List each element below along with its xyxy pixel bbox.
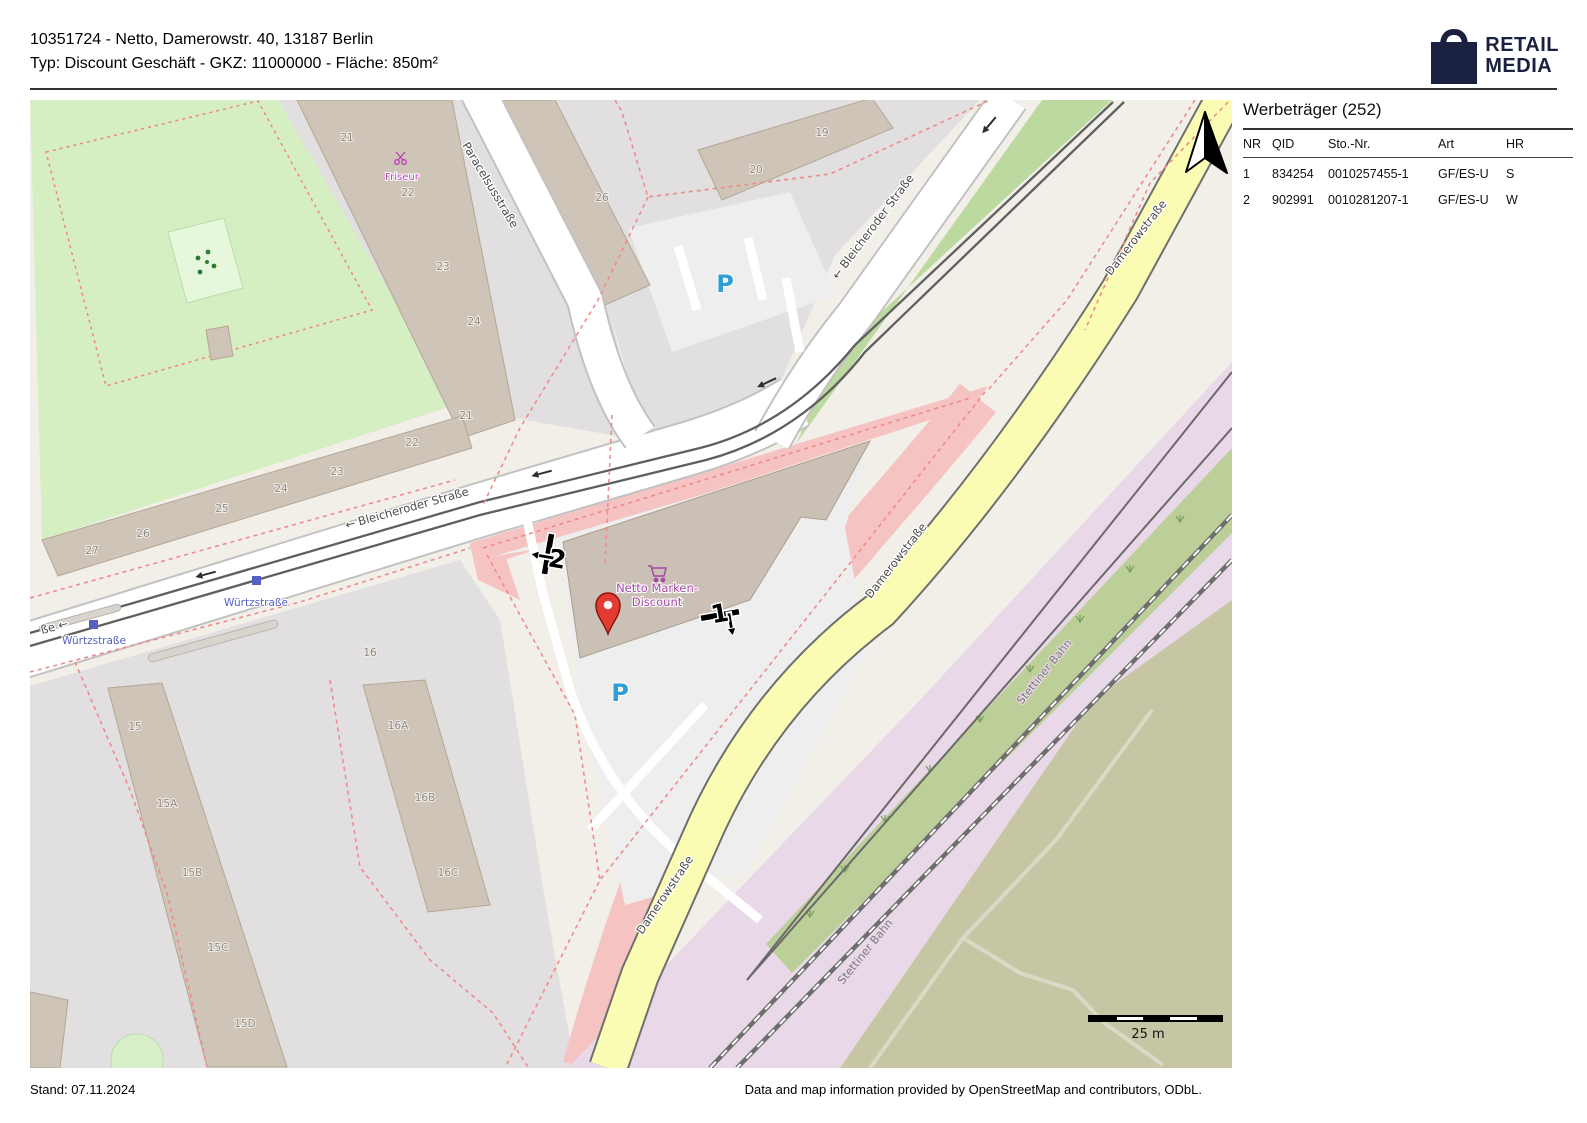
table-cell: 902991 — [1272, 184, 1328, 210]
table-cell: GF/ES-U — [1438, 158, 1506, 184]
col-hr: HR — [1506, 130, 1573, 158]
logo-word-media: MEDIA — [1485, 56, 1559, 77]
poi-label-netto-line2: Discount — [632, 595, 683, 609]
house-number: 15D — [234, 1018, 255, 1030]
house-number: 23 — [330, 466, 343, 478]
house-number: 16A — [388, 720, 409, 732]
house-number: 25 — [215, 503, 228, 515]
logo-word-retail: RETAIL — [1485, 35, 1559, 56]
house-number: 24 — [274, 483, 288, 495]
table-cell: 1 — [1243, 158, 1272, 184]
table-cell: 834254 — [1272, 158, 1328, 184]
store-subtitle: Typ: Discount Geschäft - GKZ: 11000000 -… — [30, 52, 438, 76]
tram-stop-label-wurtzstrasse: Würtzstraße — [224, 597, 288, 609]
house-number: 26 — [595, 192, 609, 204]
house-number: 22 — [405, 437, 418, 449]
house-number: 15B — [182, 867, 203, 879]
col-stonr: Sto.-Nr. — [1328, 130, 1438, 158]
house-number: 24 — [467, 316, 481, 328]
panel-title: Werbeträger (252) — [1243, 100, 1573, 130]
retail-media-logo: RETAIL MEDIA — [1429, 26, 1559, 86]
report-footer: Stand: 07.11.2024 Data and map informati… — [30, 1082, 1557, 1097]
house-number: 20 — [749, 164, 762, 176]
table-cell: 2 — [1243, 184, 1272, 210]
house-number: 26 — [136, 528, 150, 540]
map-canvas: Paracelsusstraße ← Bleicheroder Straße ←… — [30, 100, 1232, 1068]
parking-p-label: P — [611, 679, 629, 707]
house-number: 23 — [436, 261, 449, 273]
col-qid: QID — [1272, 130, 1328, 158]
house-number: 22 — [401, 187, 414, 199]
poi-label-netto-line1: Netto Marken- — [616, 581, 698, 595]
header-divider — [30, 88, 1557, 90]
table-cell: 0010257455-1 — [1328, 158, 1438, 184]
tram-stop-icon — [252, 576, 261, 585]
report-header: 10351724 - Netto, Damerowstr. 40, 13187 … — [30, 28, 438, 76]
scale-label: 25 m — [1131, 1027, 1164, 1042]
table-cell: S — [1506, 158, 1573, 184]
stand-date: Stand: 07.11.2024 — [30, 1082, 135, 1097]
col-nr: NR — [1243, 130, 1272, 158]
werbetraeger-panel: Werbeträger (252) NR QID Sto.-Nr. Art HR… — [1243, 100, 1573, 210]
table-cell: W — [1506, 184, 1573, 210]
osm-attribution: Data and map information provided by Ope… — [745, 1082, 1202, 1097]
shopping-bag-icon — [1429, 26, 1479, 86]
werbetraeger-table: NR QID Sto.-Nr. Art HR 1 834254 00102574… — [1243, 130, 1573, 210]
house-number: 15C — [208, 942, 229, 954]
tram-stop-label-wurtzstrasse: Würtzstraße — [62, 635, 126, 647]
col-art: Art — [1438, 130, 1506, 158]
house-number: 16C — [438, 867, 459, 879]
house-number: 15A — [157, 798, 178, 810]
table-cell: GF/ES-U — [1438, 184, 1506, 210]
house-number: 27 — [85, 545, 98, 557]
house-number: 21 — [340, 132, 353, 144]
house-number: 19 — [815, 127, 828, 139]
house-number: 21 — [459, 410, 472, 422]
parking-p-label: P — [716, 270, 734, 298]
house-number: 15 — [128, 721, 141, 733]
house-number: 16 — [363, 647, 377, 659]
tram-stop-icon — [89, 620, 98, 629]
poi-label-friseur: Friseur — [385, 172, 420, 183]
table-cell: 0010281207-1 — [1328, 184, 1438, 210]
house-number: 16B — [415, 792, 436, 804]
store-title: 10351724 - Netto, Damerowstr. 40, 13187 … — [30, 28, 438, 52]
